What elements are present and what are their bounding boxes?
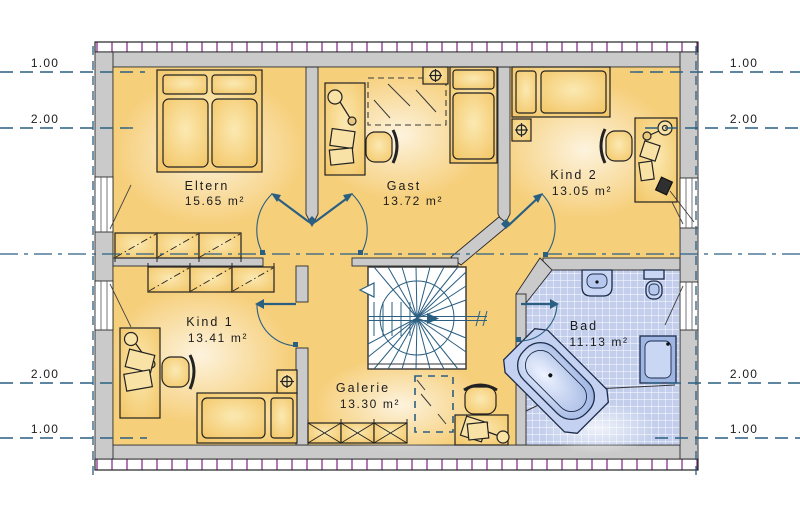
dim-label-right-4: 1.00 (730, 422, 758, 436)
wall-mid-center (352, 258, 458, 266)
room-label-bad: Bad (570, 319, 598, 333)
right-wall (680, 52, 698, 459)
desk-galerie (455, 415, 509, 445)
wall-eltern-gast (306, 67, 318, 226)
desk-gast (325, 83, 365, 175)
single-bed-gast (450, 67, 497, 163)
wall-kind1-lower (296, 348, 308, 445)
cabinet-kind2 (512, 119, 531, 141)
wall-bad-top (543, 258, 680, 270)
floor-plan-canvas: 1.00 2.00 2.00 1.00 1.00 2.00 2.00 1.00 … (0, 0, 800, 513)
room-area-bad: 11.13 m² (569, 335, 628, 349)
sink (582, 270, 612, 296)
dim-label-left-2: 2.00 (31, 112, 59, 126)
dim-label-left-3: 2.00 (31, 367, 59, 381)
shower (640, 336, 676, 383)
bottom-hatch-band (95, 459, 698, 470)
room-area-eltern: 15.65 m² (185, 194, 245, 208)
desk-kind1 (120, 328, 160, 418)
chair-galerie (464, 385, 497, 414)
dim-label-left-1: 1.00 (31, 56, 59, 70)
single-bed-kind2 (512, 67, 610, 117)
desk-lamp-icon (328, 90, 342, 104)
wardrobe-kind1 (148, 263, 274, 292)
room-area-gast: 13.72 m² (383, 194, 443, 208)
floor-plan: 1.00 2.00 2.00 1.00 1.00 2.00 2.00 1.00 … (0, 0, 800, 513)
dim-label-right-2: 2.00 (730, 112, 758, 126)
wall-gast-kind2 (498, 67, 510, 226)
single-bed-kind1 (197, 393, 297, 443)
cabinet-gast (423, 67, 448, 84)
left-wall (95, 52, 113, 459)
room-label-eltern: Eltern (185, 179, 230, 193)
cabinet-kind1 (277, 370, 297, 393)
room-area-kind2: 13.05 m² (552, 184, 612, 198)
wall-kind1-upper (296, 266, 308, 302)
room-area-galerie: 13.30 m² (340, 397, 400, 411)
wardrobe-eltern (115, 233, 241, 262)
double-bed (157, 70, 262, 172)
room-area-kind1: 13.41 m² (188, 331, 248, 345)
dim-label-right-3: 2.00 (730, 367, 758, 381)
room-label-kind1: Kind 1 (186, 315, 233, 329)
dim-label-left-4: 1.00 (31, 422, 59, 436)
desk-lamp-icon (497, 431, 509, 443)
toilet (644, 270, 664, 299)
room-label-gast: Gast (387, 179, 421, 193)
dim-label-right-1: 1.00 (730, 56, 758, 70)
shelf-galerie (308, 419, 407, 443)
top-wall (95, 52, 698, 67)
desk-lamp-icon (125, 333, 138, 346)
room-label-galerie: Galerie (336, 381, 390, 395)
top-hatch-band (95, 42, 698, 52)
room-label-kind2: Kind 2 (550, 168, 597, 182)
